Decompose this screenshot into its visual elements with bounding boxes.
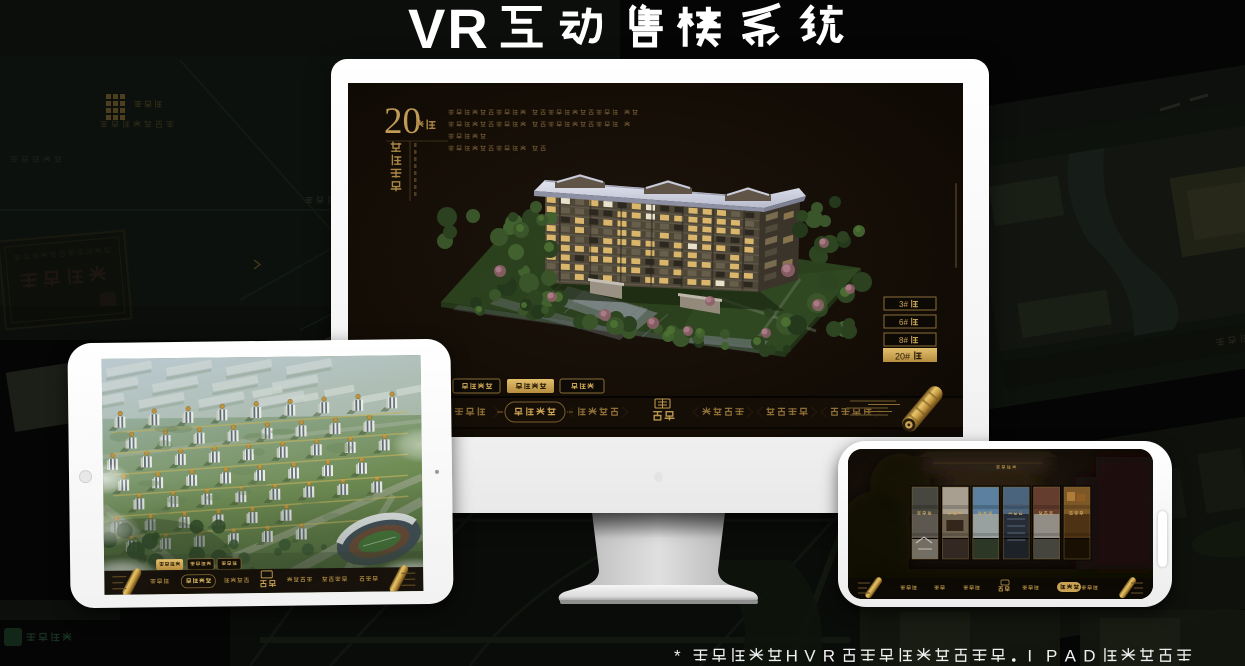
svg-text:*: *: [674, 647, 681, 666]
svg-text:I: I: [1027, 647, 1032, 666]
svg-text:D: D: [1083, 647, 1095, 666]
svg-text:P: P: [1046, 647, 1057, 666]
svg-text:V: V: [804, 647, 816, 666]
svg-text:R: R: [823, 647, 835, 666]
svg-text:A: A: [1065, 647, 1077, 666]
svg-text:H: H: [786, 647, 798, 666]
